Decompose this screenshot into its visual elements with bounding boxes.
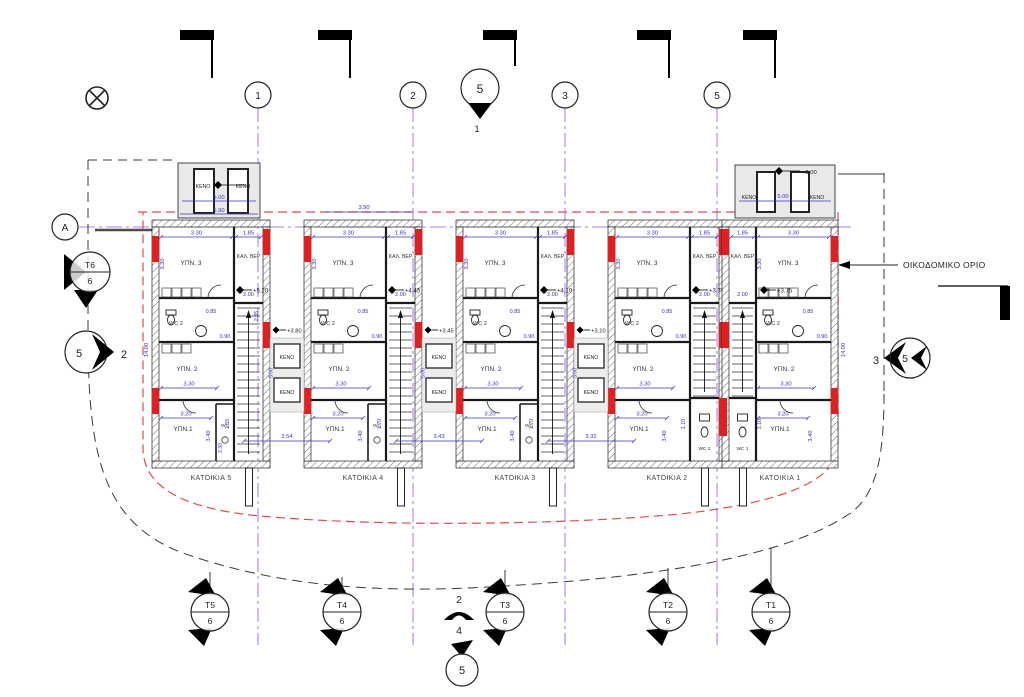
dim-text: 3.20 bbox=[484, 412, 495, 418]
unit-label: ΚΑΤΟΙΚΙΑ 5 bbox=[190, 475, 231, 482]
dim-text: 3.30 bbox=[639, 382, 650, 388]
chimney bbox=[550, 468, 557, 506]
room-label-bed1: ΥΠΝ.1 bbox=[173, 426, 193, 433]
dim-text: 0.90 bbox=[817, 334, 828, 340]
level-text: +3.10 bbox=[591, 329, 606, 335]
void-label: ΚΕΝΟ bbox=[280, 355, 295, 361]
room-label-veranda: ΚΑΛ. ΒΕΡ bbox=[731, 254, 755, 260]
dim-text: 14.00 bbox=[144, 343, 150, 358]
wall-accent bbox=[722, 322, 729, 348]
dim-text: 3.40 bbox=[808, 430, 814, 441]
t-marker-top-label: T3 bbox=[500, 600, 510, 610]
dim-text: 1.85 bbox=[395, 231, 406, 237]
dim-text: 3.32 bbox=[585, 434, 596, 440]
section-marker-T5: T56 bbox=[188, 578, 229, 646]
dim-text: 5.00 bbox=[777, 194, 788, 200]
room-label-bed3: ΥΠΝ. 3 bbox=[637, 260, 658, 267]
wall bbox=[456, 220, 574, 227]
bottom-section-markers: T56T46T36T26T16 bbox=[188, 578, 790, 646]
bottom-centre-num-mid: 4 bbox=[456, 625, 462, 637]
section-marker-T1: T16 bbox=[749, 578, 790, 646]
wall bbox=[456, 227, 463, 461]
dim-text: 3.90 bbox=[358, 205, 369, 211]
dim-text: 1.85 bbox=[547, 231, 558, 237]
grid-bubble-3: 3 bbox=[552, 82, 578, 108]
room-label-veranda: ΚΑΛ. ΒΕΡ bbox=[693, 254, 717, 260]
detail-marker-left: 5 2 bbox=[65, 331, 127, 373]
section-top-circle-label: 5 bbox=[477, 82, 484, 96]
roof-void-label: ΚΕΝΟ bbox=[810, 195, 825, 201]
unit-katoikia-4: ΚΑΤΟΙΚΙΑ 4ΥΠΝ. 3ΚΑΛ. ΒΕΡWC 2ΥΠΝ. 2ΥΠΝ.1W… bbox=[304, 220, 422, 506]
t-marker-top-label: T1 bbox=[766, 600, 776, 610]
dim-text: 3.20 bbox=[636, 412, 647, 418]
floor-plan-canvas: A 5 1 T6 6 5 2 3 5 2 4 5 bbox=[0, 0, 1024, 697]
dim-text: 3.40 bbox=[358, 430, 364, 441]
dim-text: 3.40 bbox=[662, 430, 668, 441]
level-text: +4.45 bbox=[405, 289, 421, 295]
dim-text: 3.30 bbox=[464, 258, 470, 269]
dim-text: 1.85 bbox=[737, 231, 748, 237]
level-text: +2.00 bbox=[802, 170, 817, 176]
room-label-wc: WC 2 bbox=[699, 446, 711, 452]
section-marker-T2: T26 bbox=[646, 578, 687, 646]
wall bbox=[152, 220, 270, 227]
wall bbox=[608, 461, 726, 468]
detail-marker-right: 3 5 bbox=[873, 338, 930, 378]
wall bbox=[608, 227, 615, 461]
t-marker-bottom-label: 6 bbox=[769, 616, 774, 626]
wall-accent bbox=[608, 388, 615, 414]
room-label-wc2: WC 2 bbox=[625, 321, 639, 327]
room-label-bed3: ΥΠΝ. 3 bbox=[333, 260, 354, 267]
dim-text: 3.30 bbox=[312, 258, 318, 269]
wall-accent bbox=[567, 229, 574, 255]
dim-text: 0.85 bbox=[662, 309, 673, 315]
dim-text: 2.00 bbox=[395, 292, 406, 298]
grid-bubble-label: 5 bbox=[714, 91, 720, 102]
wall-accent bbox=[608, 236, 615, 262]
wall-accent bbox=[415, 322, 422, 348]
wall-accent bbox=[456, 388, 463, 414]
room-label-bed2: ΥΠΝ. 2 bbox=[633, 366, 654, 373]
unit-label: ΚΑΤΟΙΚΙΑ 2 bbox=[646, 475, 687, 482]
detail-left-ref-label: 2 bbox=[121, 349, 127, 361]
dim-text: 0.90 bbox=[676, 334, 687, 340]
dim-text: 5.00 bbox=[269, 368, 275, 378]
dim-text: 0.85 bbox=[358, 309, 369, 315]
dim-text: 14.00 bbox=[841, 343, 847, 358]
level-text: +3.75 bbox=[777, 289, 793, 295]
wall bbox=[304, 227, 311, 461]
room-label-bed1: ΥΠΝ.1 bbox=[477, 426, 497, 433]
dim-text: 3.40 bbox=[206, 430, 212, 441]
party-wall-accent bbox=[719, 398, 727, 436]
wall bbox=[456, 461, 574, 468]
dim-text: 0.90 bbox=[372, 334, 383, 340]
chimney bbox=[740, 468, 747, 506]
wall-accent bbox=[263, 229, 270, 255]
wall-accent bbox=[304, 236, 311, 262]
chimney bbox=[246, 468, 253, 506]
dim-text: 0.85 bbox=[206, 309, 217, 315]
dim-text: 0.85 bbox=[510, 309, 521, 315]
unit-katoikia-1: ΚΑΤΟΙΚΙΑ 1ΥΠΝ. 3ΚΑΛ. ΒΕΡWC 2ΥΠΝ. 2ΥΠΝ.1W… bbox=[722, 220, 838, 506]
dim-text: 5.00 bbox=[421, 368, 427, 378]
unit-katoikia-5: ΚΑΤΟΙΚΙΑ 5ΥΠΝ. 3ΚΑΛ. ΒΕΡWC 2ΥΠΝ. 2ΥΠΝ.1W… bbox=[152, 220, 270, 506]
dim-text: 3.20 bbox=[180, 412, 191, 418]
room-label-bed2: ΥΠΝ. 2 bbox=[481, 366, 502, 373]
dim-text: 3.30 bbox=[495, 231, 506, 237]
dim-text: 2.00 bbox=[699, 292, 710, 298]
dim-text: 2.30 bbox=[218, 443, 224, 453]
wall-accent bbox=[304, 388, 311, 414]
room-label-wc2: WC 2 bbox=[766, 321, 780, 327]
chimney bbox=[398, 468, 405, 506]
t-marker-top-label: T4 bbox=[337, 600, 347, 610]
dim-text: 3.30 bbox=[335, 382, 346, 388]
detail-left-circle-label: 5 bbox=[76, 348, 82, 360]
dim-text: 1.85 bbox=[243, 231, 254, 237]
section-marker-T6: T6 6 bbox=[64, 252, 110, 308]
section-marker-top: 5 1 bbox=[461, 69, 499, 134]
t-marker-bottom-label: 6 bbox=[340, 616, 345, 626]
roof-void-left: ΚΕΝΟ ΚΕΝΟ 5.00 5.90 bbox=[178, 163, 260, 218]
section-marker-bottom-centre: 2 4 5 bbox=[444, 594, 478, 686]
t-marker-bottom-label: 6 bbox=[503, 616, 508, 626]
dim-text: 3.30 bbox=[183, 382, 194, 388]
section-marker-T3: T36 bbox=[483, 578, 524, 646]
room-label-bed2: ΥΠΝ. 2 bbox=[177, 366, 198, 373]
grid-bubble-a-label: A bbox=[62, 223, 69, 234]
level-text: +3.45 bbox=[439, 329, 454, 335]
grid-bubble-label: 3 bbox=[562, 91, 568, 102]
dim-text: 3.43 bbox=[433, 434, 444, 440]
boundary-annotation: ΟΙΚΟΔΟΜΙΚΟ ΟΡΙΟ bbox=[838, 260, 986, 270]
dim-text: 1.70 bbox=[529, 419, 535, 430]
room-label-bed3: ΥΠΝ. 3 bbox=[181, 260, 202, 267]
dim-text: 2.00 bbox=[243, 292, 254, 298]
void-label: ΚΕΝΟ bbox=[584, 355, 599, 361]
boundary-label: ΟΙΚΟΔΟΜΙΚΟ ΟΡΙΟ bbox=[903, 260, 986, 270]
boundary-arrow-icon bbox=[838, 261, 850, 269]
wall bbox=[608, 220, 726, 227]
dim-text: 2.00 bbox=[547, 292, 558, 298]
void-label: ΚΕΝΟ bbox=[584, 390, 599, 396]
void-label: ΚΕΝΟ bbox=[432, 390, 447, 396]
t6-top-label: T6 bbox=[85, 260, 95, 270]
dim-text: 1.10 bbox=[681, 419, 687, 430]
wall bbox=[152, 227, 159, 461]
dim-text: 3.30 bbox=[757, 258, 763, 269]
roof-void-right: +2.00 ΚΕΝΟ 5.00 ΚΕΝΟ bbox=[735, 165, 835, 218]
void-label: ΚΕΝΟ bbox=[280, 390, 295, 396]
dim-text: 3.30 bbox=[616, 258, 622, 269]
detail-right-ref-label: 3 bbox=[873, 355, 879, 367]
dim-text: 5.90 bbox=[213, 208, 224, 214]
t-marker-bottom-label: 6 bbox=[666, 616, 671, 626]
dim-text: 3.30 bbox=[487, 382, 498, 388]
t-marker-top-label: T5 bbox=[205, 600, 215, 610]
wall bbox=[304, 220, 422, 227]
room-label-bed3: ΥΠΝ. 3 bbox=[485, 260, 506, 267]
unit-label: ΚΑΤΟΙΚΙΑ 3 bbox=[494, 475, 535, 482]
roof-void-label: ΚΕΝΟ bbox=[196, 184, 211, 190]
grid-bubble-label: 1 bbox=[255, 91, 261, 102]
grid-bubble-1: 1 bbox=[245, 82, 271, 108]
dim-text: 0.85 bbox=[803, 309, 814, 315]
wall-accent bbox=[152, 388, 159, 414]
dim-text: 3.30 bbox=[780, 382, 791, 388]
dim-text: 3.54 bbox=[281, 434, 293, 440]
t6-bottom-label: 6 bbox=[88, 276, 93, 286]
dim-text: 2.00 bbox=[737, 292, 748, 298]
wall-accent bbox=[456, 236, 463, 262]
dim-text: 3.30 bbox=[160, 258, 166, 269]
room-label-wc2: WC 2 bbox=[169, 321, 183, 327]
chimney bbox=[702, 468, 709, 506]
grid-bubble-label: 2 bbox=[410, 91, 416, 102]
dim-text: 3.20 bbox=[332, 412, 343, 418]
roof-void-label: ΚΕΝΟ bbox=[236, 184, 251, 190]
dim-text: 1.70 bbox=[377, 419, 383, 430]
dim-text: 5.00 bbox=[213, 195, 224, 201]
room-label-bed1: ΥΠΝ.1 bbox=[325, 426, 345, 433]
wall-accent bbox=[567, 322, 574, 348]
room-label-wc: WC 1 bbox=[737, 446, 749, 452]
room-label-bed2: ΥΠΝ. 2 bbox=[774, 366, 795, 373]
dim-text: 1.85 bbox=[699, 231, 710, 237]
room-label-bed1: ΥΠΝ.1 bbox=[629, 426, 649, 433]
dim-text: 1.10 bbox=[757, 419, 763, 430]
dim-text: 2.35 bbox=[254, 311, 260, 322]
wall bbox=[152, 461, 270, 468]
grid-bubble-A: A bbox=[52, 214, 78, 240]
dim-text: 0.90 bbox=[524, 334, 535, 340]
dim-text: 3.20 bbox=[777, 412, 788, 418]
wall-accent bbox=[415, 229, 422, 255]
dim-text: 5.00 bbox=[573, 368, 579, 378]
t-marker-bottom-label: 6 bbox=[208, 616, 213, 626]
roof-void-label: ΚΕΝΟ bbox=[742, 195, 757, 201]
level-text: +3.80 bbox=[287, 329, 302, 335]
unit-katoikia-2: ΚΑΤΟΙΚΙΑ 2ΥΠΝ. 3ΚΑΛ. ΒΕΡWC 2ΥΠΝ. 2ΥΠΝ.1W… bbox=[608, 220, 726, 506]
grid-bubble-2: 2 bbox=[400, 82, 426, 108]
wall bbox=[722, 220, 838, 227]
north-symbol bbox=[86, 87, 108, 109]
dim-text: 3.30 bbox=[647, 231, 658, 237]
floor-plan-drawing: A 5 1 T6 6 5 2 3 5 2 4 5 bbox=[0, 0, 1024, 697]
wall-accent bbox=[831, 388, 838, 414]
room-label-wc2: WC 2 bbox=[473, 321, 487, 327]
detail-right-circle-label: 5 bbox=[902, 353, 908, 365]
unit-label: ΚΑΤΟΙΚΙΑ 1 bbox=[759, 475, 800, 482]
room-label-veranda: ΚΑΛ. ΒΕΡ bbox=[541, 254, 565, 260]
wall bbox=[304, 461, 422, 468]
room-label-veranda: ΚΑΛ. ΒΕΡ bbox=[237, 254, 261, 260]
section-marker-T4: T46 bbox=[320, 578, 361, 646]
dim-text: 3.30 bbox=[788, 231, 799, 237]
bottom-centre-circle-label: 5 bbox=[459, 665, 465, 677]
dim-text: 0.90 bbox=[220, 334, 231, 340]
section-top-ref-label: 1 bbox=[474, 124, 479, 134]
room-label-bed2: ΥΠΝ. 2 bbox=[329, 366, 350, 373]
building-units: ΚΑΤΟΙΚΙΑ 5ΥΠΝ. 3ΚΑΛ. ΒΕΡWC 2ΥΠΝ. 2ΥΠΝ.1W… bbox=[152, 220, 838, 506]
wall-accent bbox=[722, 229, 729, 255]
t-marker-top-label: T2 bbox=[663, 600, 673, 610]
room-label-wc2: WC 2 bbox=[321, 321, 335, 327]
level-text: +4.10 bbox=[557, 289, 573, 295]
dim-text: 1.55 bbox=[225, 419, 231, 430]
wall-accent bbox=[152, 236, 159, 262]
room-label-bed3: ΥΠΝ. 3 bbox=[778, 260, 799, 267]
dim-text: 3.30 bbox=[191, 231, 202, 237]
room-label-bed1: ΥΠΝ.1 bbox=[770, 426, 790, 433]
bottom-centre-num-top: 2 bbox=[456, 594, 462, 606]
unit-katoikia-3: ΚΑΤΟΙΚΙΑ 3ΥΠΝ. 3ΚΑΛ. ΒΕΡWC 2ΥΠΝ. 2ΥΠΝ.1W… bbox=[456, 220, 574, 506]
unit-label: ΚΑΤΟΙΚΙΑ 4 bbox=[342, 475, 383, 482]
room-label-veranda: ΚΑΛ. ΒΕΡ bbox=[389, 254, 413, 260]
void-label: ΚΕΝΟ bbox=[432, 355, 447, 361]
wall bbox=[831, 227, 838, 461]
wall bbox=[722, 461, 838, 468]
wall-accent bbox=[263, 322, 270, 348]
level-text: +5.20 bbox=[253, 289, 269, 295]
dim-text: 3.30 bbox=[343, 231, 354, 237]
dim-text: 3.40 bbox=[510, 430, 516, 441]
wall-accent bbox=[831, 236, 838, 262]
grid-bubble-5: 5 bbox=[704, 82, 730, 108]
